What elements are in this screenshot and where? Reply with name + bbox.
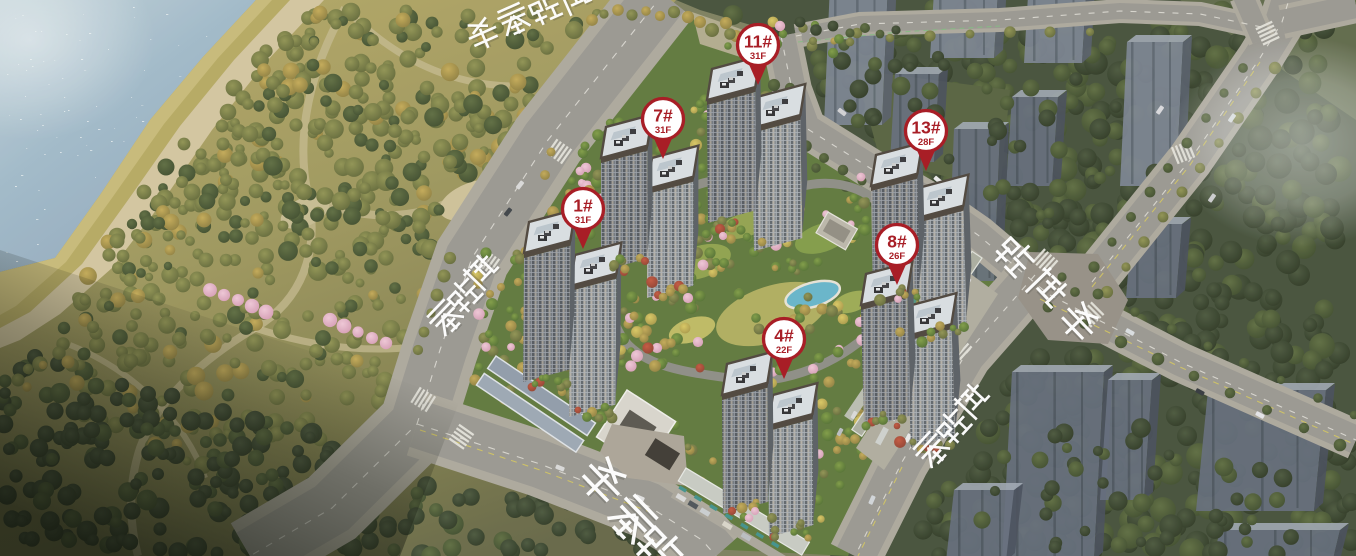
svg-text:1#: 1# [573, 196, 593, 216]
svg-text:28F: 28F [918, 137, 935, 148]
svg-text:11#: 11# [744, 32, 772, 52]
svg-text:4#: 4# [774, 326, 794, 346]
svg-text:26F: 26F [889, 251, 906, 262]
svg-text:22F: 22F [776, 345, 793, 356]
svg-text:31F: 31F [655, 125, 672, 136]
svg-text:13#: 13# [911, 118, 940, 138]
svg-text:7#: 7# [653, 106, 673, 126]
svg-text:8#: 8# [887, 232, 907, 252]
svg-text:31F: 31F [575, 215, 592, 226]
svg-text:31F: 31F [750, 51, 767, 62]
